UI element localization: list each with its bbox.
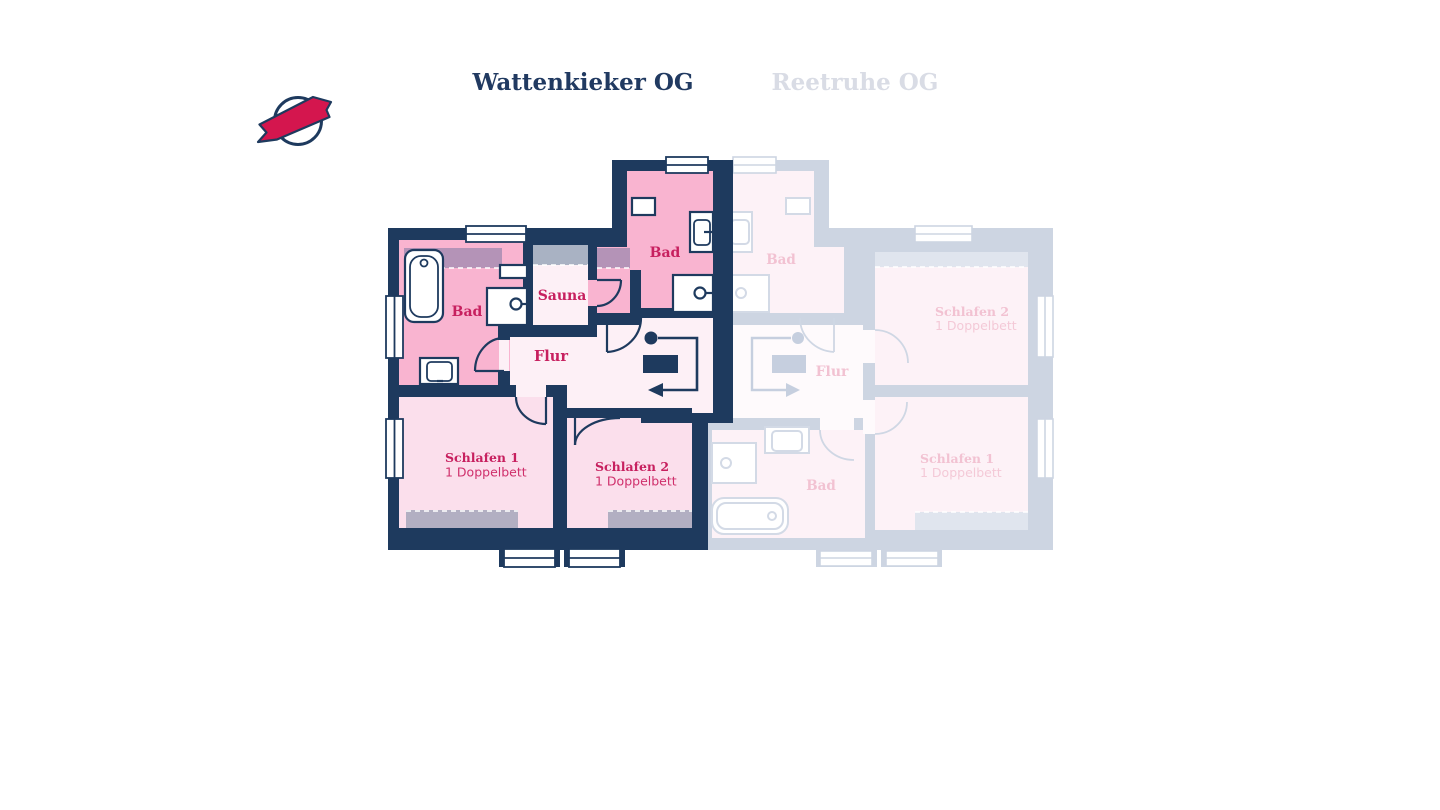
reetruhe-label-bad-top: Bad — [766, 252, 796, 268]
wattenkieker-hatch-sauna — [533, 245, 588, 265]
wattenkieker-label-bad-top: Bad — [650, 245, 681, 261]
brand-logo-icon[interactable] — [258, 97, 331, 145]
wattenkieker-label-schlafen2: Schlafen 2 — [595, 459, 669, 474]
floorplan-reetruhe: Bad Flur Schlafen 2 1 Doppelbett Schlafe… — [708, 157, 1053, 567]
wattenkieker-label-schlafen2-detail: 1 Doppelbett — [595, 474, 677, 489]
reetruhe-label-schlafen1-detail: 1 Doppelbett — [920, 465, 1002, 480]
wattenkieker-hatch-schlafen2 — [608, 510, 692, 528]
reetruhe-label-schlafen2: Schlafen 2 — [935, 304, 1009, 319]
wattenkieker-label-sauna: Sauna — [538, 288, 587, 304]
reetruhe-shelf — [786, 198, 810, 214]
wattenkieker-label-schlafen1: Schlafen 1 — [445, 450, 519, 465]
reetruhe-label-schlafen1: Schlafen 1 — [920, 451, 994, 466]
floorplan-wattenkieker: Bad Bad Sauna Flur Schlafen 1 1 Doppelbe… — [386, 157, 733, 567]
tab-wattenkieker-og[interactable]: Wattenkieker OG — [471, 69, 693, 96]
wattenkieker-hatch-bad-top — [597, 248, 630, 268]
floorplan-viewer: Wattenkieker OG Reetruhe OG — [0, 0, 1440, 810]
reetruhe-sink — [728, 275, 769, 312]
reetruhe-label-flur: Flur — [816, 364, 849, 380]
wattenkieker-shelf-top — [632, 198, 655, 215]
wattenkieker-label-flur: Flur — [534, 348, 568, 365]
reetruhe-sink-2 — [712, 443, 756, 483]
wattenkieker-label-bad-left: Bad — [452, 304, 483, 320]
reetruhe-label-bad-bottom: Bad — [806, 478, 836, 494]
reetruhe-hatch-schlafen2 — [875, 252, 1028, 267]
wattenkieker-label-schlafen1-detail: 1 Doppelbett — [445, 465, 527, 480]
reetruhe-label-schlafen2-detail: 1 Doppelbett — [935, 318, 1017, 333]
reetruhe-hatch-schlafen1 — [915, 512, 1028, 530]
tab-reetruhe-og[interactable]: Reetruhe OG — [772, 69, 939, 96]
wattenkieker-shelf — [500, 265, 527, 278]
wattenkieker-hatch-schlafen1 — [406, 510, 518, 528]
